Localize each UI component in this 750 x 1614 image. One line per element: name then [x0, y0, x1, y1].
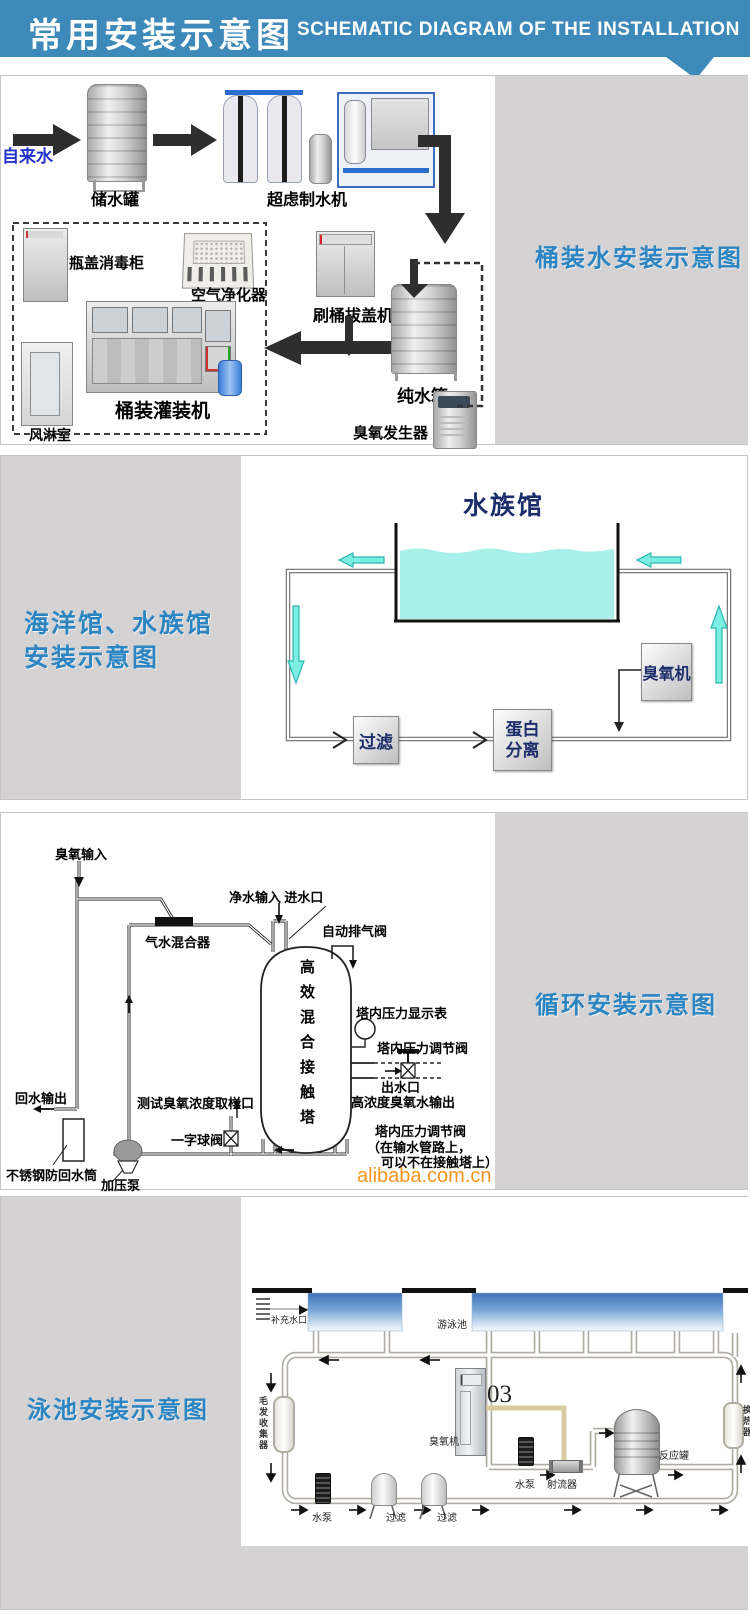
gas-water-mixer-bar [155, 917, 193, 926]
contact-tower-label: 高效混合接触塔 [296, 959, 317, 1144]
ball-valve-symbol [224, 1131, 238, 1146]
machine-display [460, 1374, 482, 1386]
inlet-pointer-line [289, 906, 326, 939]
section-swimming-pool: 泳池安装示意图 [0, 1196, 748, 1610]
makeup-water-hatch [256, 1299, 270, 1319]
machine-door-line [460, 1391, 471, 1445]
o3-text: 03 [487, 1381, 512, 1409]
pool-ozone-machine-label: 臭氧机 [429, 1433, 459, 1448]
circulation-pipe [285, 1331, 735, 1501]
section1-flow-arrows [1, 76, 495, 444]
pressure-pump-label: 加压泵 [101, 1175, 140, 1194]
swimming-pool-water [472, 1293, 723, 1331]
reaction-tank-illustration [614, 1409, 660, 1475]
balance-pool-water [308, 1293, 402, 1331]
product-schematic-page: 常用安装示意图 SCHEMATIC DIAGRAM OF THE INSTALL… [0, 0, 750, 1614]
injector-illustration [552, 1460, 580, 1473]
gas-water-mixer-label: 气水混合器 [145, 932, 210, 951]
injector-label: 射流器 [547, 1476, 577, 1491]
tank-ribs [615, 1432, 659, 1458]
swimming-pool-label: 游泳池 [437, 1316, 467, 1331]
section3-label-panel: 循环安装示意图 [495, 813, 748, 1189]
clean-water-input-label: 净水输入 进水口 [229, 887, 323, 906]
section-bottled-water: 桶装水安装示意图 自来水 储水罐 超虑制水机 刷桶拔盖机 纯水箱 [0, 75, 748, 445]
mid-pump-illustration [518, 1437, 534, 1466]
regulating-valve-symbol [401, 1063, 415, 1078]
section2-label-line2: 安装示意图 [24, 638, 159, 674]
pool-diagram: 毛发收集器 臭氧机 03 水泵 射流器 反应罐 换热器 水泵 过滤 过滤 [241, 1197, 748, 1546]
filter-box-label: 过滤 [359, 728, 393, 753]
aquarium-title: 水族馆 [463, 486, 544, 522]
heat-exchanger-label: 换热器 [741, 1405, 750, 1445]
protein-box-label: 蛋白分离 [506, 719, 540, 762]
ozone-water-out-label: 高浓度臭氧水输出 [351, 1092, 455, 1111]
mid-pump-label: 水泵 [515, 1476, 535, 1491]
section4-label: 泳池安装示意图 [27, 1390, 209, 1425]
filter2-illust​ration [421, 1473, 447, 1506]
sampling-port-label: 测试臭氧浓度取样口 [137, 1093, 254, 1112]
ozone-feed-line [619, 670, 641, 724]
section1-label: 桶装水安装示意图 [535, 238, 743, 273]
ball-valve-label: 一字球阀 [171, 1130, 223, 1149]
return-output-label: 回水输出 [15, 1088, 67, 1107]
aquarium-water [400, 549, 614, 620]
filter1-label: 过滤 [386, 1509, 406, 1524]
hair-collector-illustration [273, 1396, 295, 1453]
flow-arrows [267, 1356, 745, 1514]
section4-label-panel: 泳池安装示意图 [1, 1197, 241, 1609]
watermark: alibaba.com.cn [357, 1165, 492, 1188]
workshop-dashed-box [13, 223, 266, 434]
bottom-pump-illustration [315, 1473, 331, 1504]
ozone-machine-box: 臭氧机 [641, 643, 692, 701]
filter2-label: 过滤 [437, 1509, 457, 1524]
ozone-feed-arrowhead [614, 722, 624, 732]
header-banner: 常用安装示意图 SCHEMATIC DIAGRAM OF THE INSTALL… [0, 0, 750, 57]
section-aquarium: 海洋馆、水族馆 安装示意图 [0, 455, 748, 800]
aquarium-diagram: 水族馆 过滤 蛋白分离 臭氧机 [241, 456, 749, 799]
anti-backflow-cylinder [63, 1119, 84, 1161]
ozone-input-label: 臭氧输入 [55, 844, 107, 863]
equipment-legs [370, 1471, 658, 1519]
pool-ozone-machine-illustration [455, 1368, 486, 1456]
makeup-inlet-label: 补充水口 [271, 1313, 307, 1326]
section1-label-panel: 桶装水安装示意图 [495, 76, 748, 444]
bottom-pump-label: 水泵 [312, 1509, 332, 1524]
reaction-tank-label: 反应罐 [659, 1447, 689, 1462]
section2-label-line1: 海洋馆、水族馆 [24, 604, 213, 640]
page-title: 常用安装示意图 [28, 8, 294, 57]
section4-bottom-strip [241, 1546, 748, 1609]
section2-label-panel: 海洋馆、水族馆 安装示意图 [1, 456, 241, 799]
anti-backflow-label: 不锈钢防回水筒 [6, 1165, 97, 1184]
page-subtitle: SCHEMATIC DIAGRAM OF THE INSTALLATION [297, 19, 740, 41]
ozone-machine-box-label: 臭氧机 [642, 660, 690, 684]
black-flow-arrows [13, 124, 465, 365]
pressure-valve-label: 塔内压力调节阀 [377, 1038, 468, 1057]
pressure-gauge-dial [355, 1019, 375, 1039]
section3-label: 循环安装示意图 [535, 985, 717, 1020]
section-circulation: 循环安装示意图 [0, 812, 748, 1190]
filter-box: 过滤 [353, 716, 399, 764]
filter1-illustration [371, 1473, 397, 1506]
pressure-pump-base [118, 1161, 138, 1173]
hair-collector-label: 毛发收集器 [257, 1396, 270, 1454]
auto-exhaust-valve-label: 自动排气阀 [322, 921, 387, 940]
protein-separator-box: 蛋白分离 [493, 709, 552, 771]
pressure-pump-body [114, 1140, 142, 1162]
pressure-gauge-label: 塔内压力显示表 [356, 1003, 447, 1022]
deck-bars [252, 1288, 748, 1293]
